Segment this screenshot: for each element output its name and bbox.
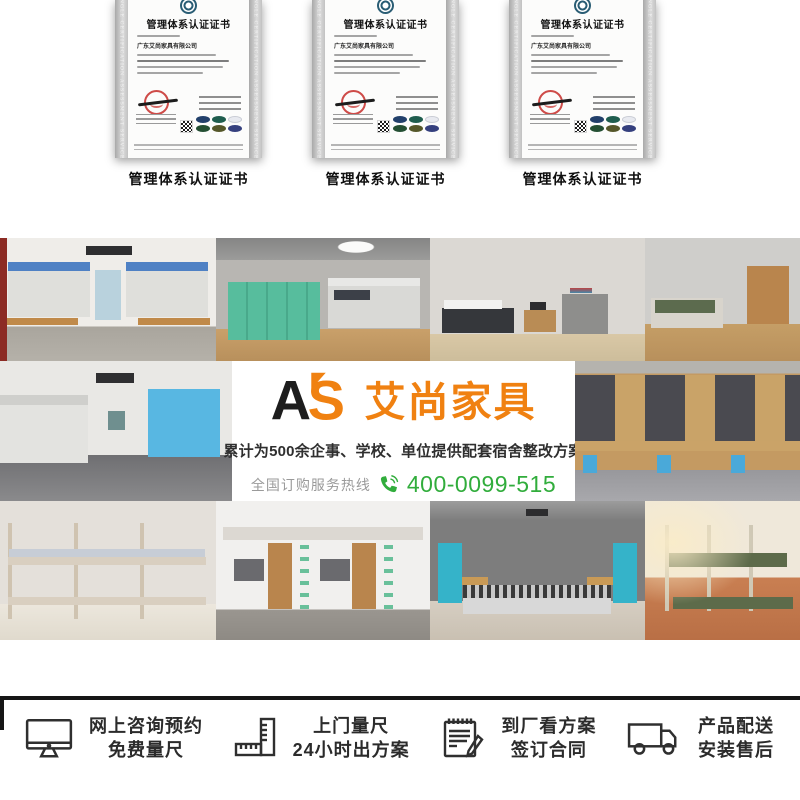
banner-tagline: 累计为500余企事、学校、单位提供配套宿舍整改方案 bbox=[223, 440, 583, 461]
service-factory-contract: 到厂看方案 签订合同 bbox=[440, 714, 596, 763]
certificate-company: 广东艾尚家具有限公司 bbox=[531, 41, 636, 50]
certifier-org-lines bbox=[333, 111, 373, 125]
certificate-side-text: ANGLE CERTIFICATION ASSESSMENT SERVICES bbox=[119, 0, 125, 158]
accreditation-badges bbox=[393, 116, 439, 132]
certificate-left-band: ANGLE CERTIFICATION ASSESSMENT SERVICES bbox=[115, 0, 128, 158]
gallery-photo-green-lockers-room bbox=[216, 238, 430, 361]
certificate-footnote-lines bbox=[331, 141, 440, 150]
certificate-dates bbox=[199, 92, 241, 110]
certificate-left-band: ANGLE CERTIFICATION ASSESSMENT SERVICES bbox=[312, 0, 325, 158]
certifier-org-lines bbox=[530, 111, 570, 125]
gallery-row-3 bbox=[0, 501, 800, 640]
whitespace-divider bbox=[0, 640, 800, 696]
gallery-photo-loft-beds-desks bbox=[216, 501, 430, 640]
certificate-caption: 管理体系认证证书 bbox=[129, 169, 249, 189]
brand-name: 艾尚家具 bbox=[365, 368, 537, 428]
hotline-label: 全国订购服务热线 bbox=[251, 475, 371, 495]
certifier-emblem-icon bbox=[180, 0, 197, 14]
brand-logo-row: A S 艾尚家具 bbox=[271, 368, 537, 428]
service-text: 到厂看方案 签订合同 bbox=[501, 714, 596, 763]
certificate-caption: 管理体系认证证书 bbox=[523, 169, 643, 189]
svg-text:A: A bbox=[271, 370, 311, 426]
certificate-right-band: ANGLE CERTIFICATION ASSESSMENT SERVICES bbox=[643, 0, 656, 158]
gallery-photo-study-desks bbox=[575, 361, 800, 501]
certificates-section: ANGLE CERTIFICATION ASSESSMENT SERVICES … bbox=[0, 0, 800, 238]
certificate-left-band: ANGLE CERTIFICATION ASSESSMENT SERVICES bbox=[509, 0, 522, 158]
certificate-column-2: ANGLE CERTIFICATION ASSESSMENT SERVICES … bbox=[312, 0, 459, 189]
service-online-consult: 网上咨询预约 免费量尺 bbox=[24, 714, 203, 763]
service-onsite-measure: 上门量尺 24小时出方案 bbox=[234, 714, 410, 763]
certificate-footnote-lines bbox=[528, 141, 637, 150]
truck-icon bbox=[627, 718, 683, 758]
certificate-body: 管理体系认证证书 广东艾尚家具有限公司 bbox=[325, 0, 446, 158]
certificate-document: ANGLE CERTIFICATION ASSESSMENT SERVICES … bbox=[509, 0, 656, 158]
accreditation-badges bbox=[590, 116, 636, 132]
service-text: 上门量尺 24小时出方案 bbox=[293, 714, 410, 763]
certificate-column-3: ANGLE CERTIFICATION ASSESSMENT SERVICES … bbox=[509, 0, 656, 189]
qr-code-icon bbox=[180, 120, 193, 133]
certificate-dates bbox=[396, 92, 438, 110]
qr-code-icon bbox=[377, 120, 390, 133]
certificate-side-text: ANGLE CERTIFICATION ASSESSMENT SERVICES bbox=[316, 0, 322, 158]
certifier-emblem-icon bbox=[377, 0, 394, 14]
monitor-icon bbox=[24, 717, 74, 759]
hotline-number: 400-0099-515 bbox=[407, 471, 556, 498]
certificate-dates bbox=[593, 92, 635, 110]
qr-code-icon bbox=[574, 120, 587, 133]
phone-icon bbox=[378, 474, 400, 495]
gallery-row-1 bbox=[0, 238, 800, 361]
service-text: 网上咨询预约 免费量尺 bbox=[89, 714, 203, 763]
certificate-company: 广东艾尚家具有限公司 bbox=[334, 41, 439, 50]
gallery-photo-wood-wardrobe-dorm bbox=[645, 238, 800, 361]
certificate-caption: 管理体系认证证书 bbox=[326, 169, 446, 189]
certificate-title: 管理体系认证证书 bbox=[135, 16, 242, 31]
service-text: 产品配送 安装售后 bbox=[698, 714, 774, 763]
certificate-title: 管理体系认证证书 bbox=[529, 16, 636, 31]
svg-text:S: S bbox=[307, 370, 344, 426]
certifier-org-lines bbox=[136, 111, 176, 125]
certifier-emblem-icon bbox=[574, 0, 591, 14]
service-steps-bar: 网上咨询预约 免费量尺 上门量尺 24小时出方案 bbox=[0, 696, 800, 800]
service-delivery-install: 产品配送 安装售后 bbox=[627, 714, 774, 763]
certificate-document: ANGLE CERTIFICATION ASSESSMENT SERVICES … bbox=[312, 0, 459, 158]
gallery-photo-grey-room-single-beds bbox=[430, 501, 645, 640]
gallery-photo-single-bed-room bbox=[430, 238, 645, 361]
gallery-photo-blue-wardrobe-dorm bbox=[0, 361, 232, 501]
gallery-photo-green-metal-bunks bbox=[645, 501, 800, 640]
certificate-right-band: ANGLE CERTIFICATION ASSESSMENT SERVICES bbox=[446, 0, 459, 158]
certificate-body: 管理体系认证证书 广东艾尚家具有限公司 bbox=[128, 0, 249, 158]
as-logo-icon: A S bbox=[271, 370, 357, 426]
certificate-footnote-lines bbox=[134, 141, 243, 150]
certificate-document: ANGLE CERTIFICATION ASSESSMENT SERVICES … bbox=[115, 0, 262, 158]
ruler-icon bbox=[234, 716, 278, 760]
brand-banner: A S 艾尚家具 累计为500余企事、学校、单位提供配套宿舍整改方案 全国订购服… bbox=[232, 361, 575, 501]
gallery-photo-triple-bunks bbox=[0, 501, 216, 640]
certificate-side-text: ANGLE CERTIFICATION ASSESSMENT SERVICES bbox=[253, 0, 259, 158]
certificate-right-band: ANGLE CERTIFICATION ASSESSMENT SERVICES bbox=[249, 0, 262, 158]
gallery-photo-blue-bunk-dorm bbox=[0, 238, 216, 361]
certificate-side-text: ANGLE CERTIFICATION ASSESSMENT SERVICES bbox=[647, 0, 653, 158]
certificates-row: ANGLE CERTIFICATION ASSESSMENT SERVICES … bbox=[0, 0, 800, 189]
project-photo-gallery: A S 艾尚家具 累计为500余企事、学校、单位提供配套宿舍整改方案 全国订购服… bbox=[0, 238, 800, 640]
certificate-column-1: ANGLE CERTIFICATION ASSESSMENT SERVICES … bbox=[115, 0, 262, 189]
certificate-title: 管理体系认证证书 bbox=[332, 16, 439, 31]
certificate-side-text: ANGLE CERTIFICATION ASSESSMENT SERVICES bbox=[450, 0, 456, 158]
certificate-body: 管理体系认证证书 广东艾尚家具有限公司 bbox=[522, 0, 643, 158]
contract-icon bbox=[440, 715, 486, 761]
certificate-side-text: ANGLE CERTIFICATION ASSESSMENT SERVICES bbox=[513, 0, 519, 158]
certificate-company: 广东艾尚家具有限公司 bbox=[137, 41, 242, 50]
gallery-row-2: A S 艾尚家具 累计为500余企事、学校、单位提供配套宿舍整改方案 全国订购服… bbox=[0, 361, 800, 501]
accreditation-badges bbox=[196, 116, 242, 132]
hotline-row: 全国订购服务热线 400-0099-515 bbox=[251, 471, 556, 498]
